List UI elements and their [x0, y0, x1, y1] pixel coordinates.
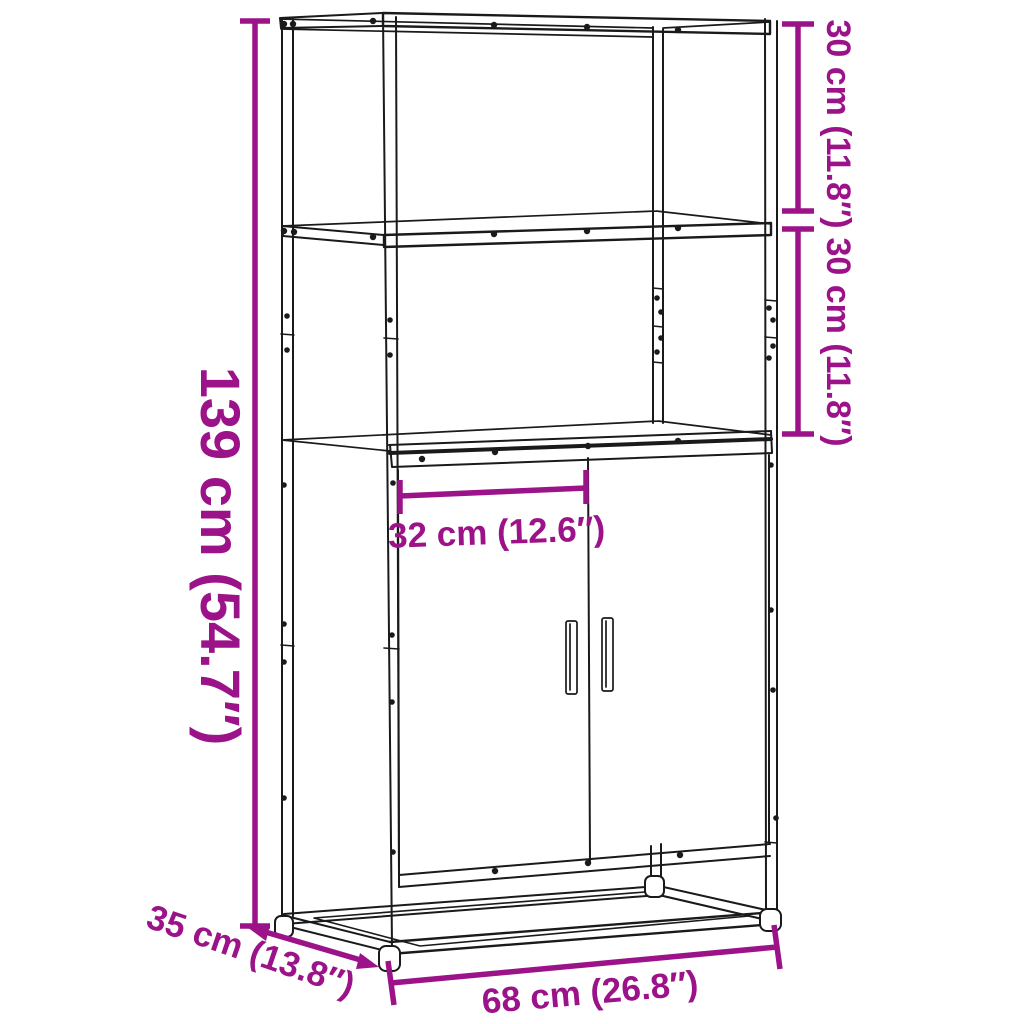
inner-width-dimension-line [400, 470, 586, 514]
door-handle-right [602, 618, 613, 691]
base-frame [282, 886, 775, 954]
door-bottom-rail [399, 844, 770, 887]
dimension-diagram: 139 cm (54.7″) 30 cm (11.8″) 30 cm (11.8… [0, 0, 1024, 1024]
foot-back-right [645, 876, 664, 897]
door-handle-left [566, 621, 577, 694]
front-left-post [383, 14, 399, 947]
top-shelf [280, 13, 770, 37]
diagram-canvas: 139 cm (54.7″) 30 cm (11.8″) 30 cm (11.8… [0, 0, 1024, 1024]
top-shelf-dimension: 30 cm (11.8″) [782, 19, 857, 228]
dimensions: 139 cm (54.7″) 30 cm (11.8″) 30 cm (11.8… [142, 19, 857, 1021]
cabinet-top-shelf [282, 421, 772, 467]
top-shelf-dimension-label: 30 cm (11.8″) [819, 19, 857, 228]
back-right-post [651, 27, 663, 879]
height-dimension: 139 cm (54.7″) [189, 21, 270, 926]
middle-shelf-dimension-line [782, 229, 814, 434]
middle-shelf-dimension: 30 cm (11.8″) [782, 229, 857, 447]
post-seams [281, 288, 777, 843]
top-shelf-dimension-line [782, 24, 814, 211]
frame-posts [281, 14, 777, 947]
depth-arrow-front [356, 953, 379, 969]
height-dimension-label: 139 cm (54.7″) [189, 367, 252, 746]
inner-width-dimension: 32 cm (12.6″) [387, 470, 605, 556]
depth-dimension: 35 cm (13.8″) [142, 897, 379, 1005]
inner-width-dimension-label: 32 cm (12.6″) [387, 509, 605, 556]
middle-shelf [282, 211, 771, 247]
back-left-post [282, 18, 293, 916]
foot-front-right [760, 909, 781, 931]
middle-shelf-dimension-label: 30 cm (11.8″) [819, 237, 857, 446]
